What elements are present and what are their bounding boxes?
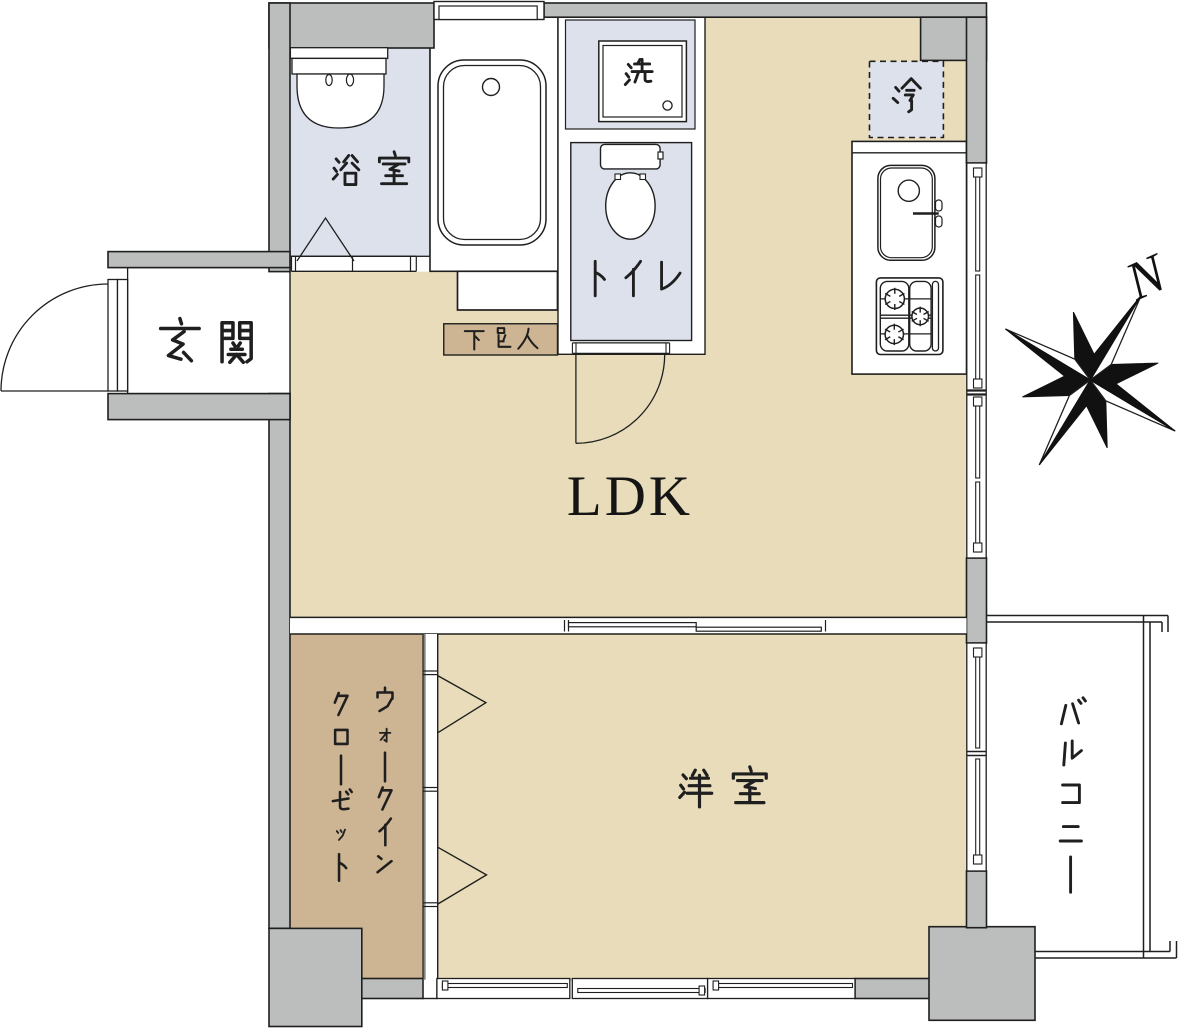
svg-text:LDK: LDK: [567, 465, 693, 528]
svg-text:N: N: [1116, 241, 1177, 312]
